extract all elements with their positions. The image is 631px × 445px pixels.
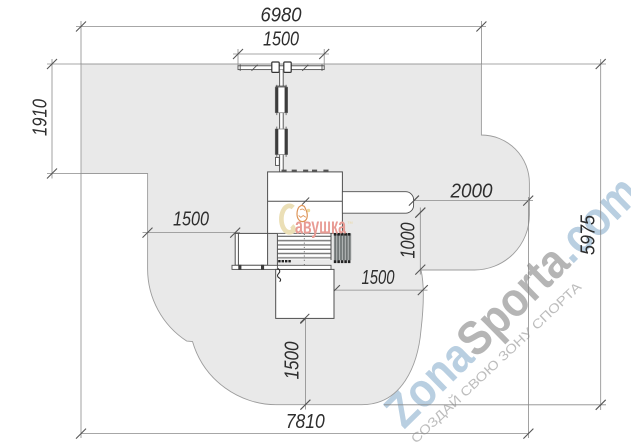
svg-text:авушка: авушка	[295, 214, 346, 239]
svg-text:1500: 1500	[362, 266, 395, 289]
svg-text:1500: 1500	[263, 27, 299, 50]
svg-text:™: ™	[347, 221, 353, 228]
svg-text:2000: 2000	[450, 180, 493, 203]
svg-text:1500: 1500	[173, 207, 209, 230]
svg-text:1500: 1500	[281, 341, 304, 379]
svg-text:6980: 6980	[261, 3, 303, 26]
svg-text:1910: 1910	[28, 99, 51, 136]
svg-text:5975: 5975	[577, 214, 600, 255]
svg-text:7810: 7810	[286, 410, 326, 433]
svg-text:1000: 1000	[397, 222, 420, 258]
